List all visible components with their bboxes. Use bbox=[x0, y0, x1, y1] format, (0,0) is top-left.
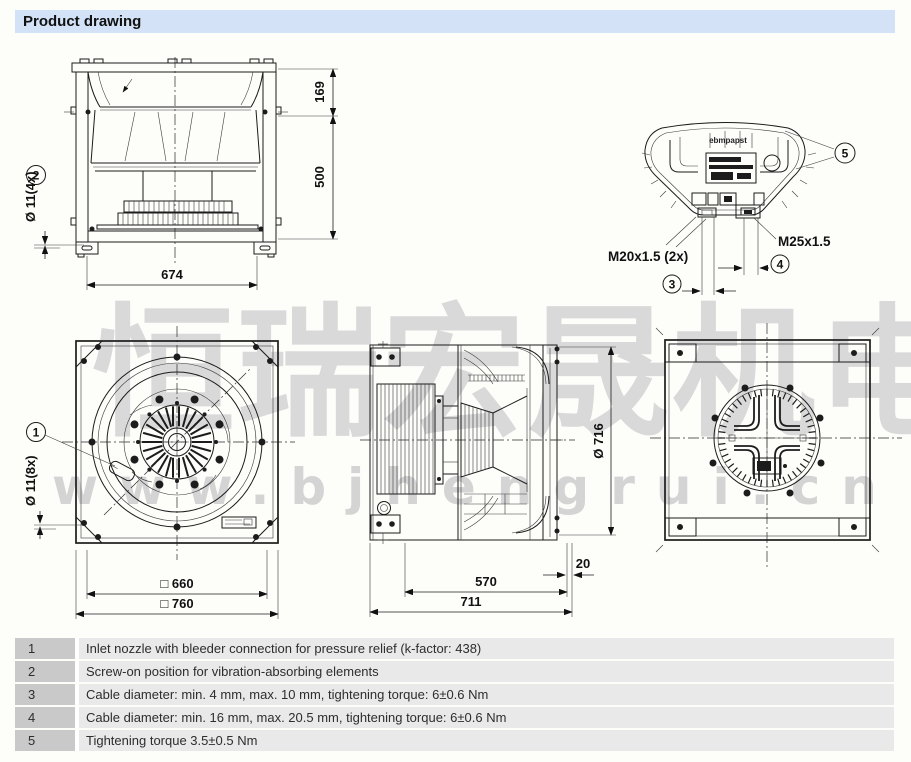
fan-side-outline bbox=[64, 57, 288, 265]
gland-labels: M20x1.5 (2x) M25x1.5 bbox=[608, 217, 831, 264]
legend-text: Cable diameter: min. 4 mm, max. 10 mm, t… bbox=[79, 684, 894, 705]
dimension-674: 674 bbox=[87, 256, 257, 290]
callout-5: 5 bbox=[785, 131, 855, 169]
drawing-front-view: 1 Ø 11(8x) □ 660 □ 760 bbox=[20, 320, 330, 620]
gland-m20-label: M20x1.5 (2x) bbox=[608, 249, 688, 264]
legend-num: 1 bbox=[15, 638, 75, 659]
nameplate bbox=[222, 517, 256, 528]
legend-row-2: 2 Screw-on position for vibration-absorb… bbox=[15, 661, 894, 682]
hole-label-8x: Ø 11(8x) bbox=[23, 455, 38, 506]
depth-view-body bbox=[360, 341, 575, 544]
rear-view-frame bbox=[650, 323, 902, 570]
gland-m25-label: M25x1.5 bbox=[778, 234, 831, 249]
bleeder-connection bbox=[108, 460, 137, 483]
dimension-711: 711 bbox=[370, 543, 572, 617]
legend-num: 3 bbox=[15, 684, 75, 705]
section-header: Product drawing bbox=[15, 10, 895, 33]
legend-row-5: 5 Tightening torque 3.5±0.5 Nm bbox=[15, 730, 894, 751]
svg-text:3: 3 bbox=[669, 278, 676, 292]
rotor-teeth bbox=[465, 405, 489, 475]
drawing-terminal-box: ebmpapst 5 M20x1.5 (2x) M25x1.5 3 4 bbox=[600, 105, 910, 305]
dim-674-label: 674 bbox=[161, 267, 183, 282]
product-drawing-page: { "header": { "title": "Product drawing"… bbox=[0, 0, 911, 762]
dimension-570: 570 bbox=[405, 543, 567, 597]
legend-text: Inlet nozzle with bleeder connection for… bbox=[79, 638, 894, 659]
svg-text:5: 5 bbox=[842, 147, 849, 161]
page-title: Product drawing bbox=[15, 10, 895, 33]
dim-169-label: 169 bbox=[312, 81, 327, 103]
svg-text:□ 660: □ 660 bbox=[160, 576, 193, 591]
legend-num: 2 bbox=[15, 661, 75, 682]
svg-text:711: 711 bbox=[461, 594, 482, 609]
motor-fin-lines bbox=[381, 384, 433, 494]
svg-text:20: 20 bbox=[576, 556, 590, 571]
drawing-depth-view: Ø 716 20 570 711 bbox=[335, 318, 645, 620]
drawing-rear-view bbox=[650, 320, 910, 575]
dim-500-label: 500 bbox=[312, 166, 327, 188]
svg-text:Ø 716: Ø 716 bbox=[591, 423, 606, 458]
dimension-20: 20 bbox=[543, 543, 594, 617]
legend-num: 5 bbox=[15, 730, 75, 751]
legend-num: 4 bbox=[15, 707, 75, 728]
inlet-grid-ticks bbox=[470, 375, 522, 381]
legend-row-3: 3 Cable diameter: min. 4 mm, max. 10 mm,… bbox=[15, 684, 894, 705]
brand-logo-text: ebmpapst bbox=[709, 136, 747, 145]
callout-2-hole-label: 2 Ø 11(4x) bbox=[23, 166, 84, 260]
svg-text:4: 4 bbox=[777, 258, 784, 272]
svg-text:□ 760: □ 760 bbox=[160, 596, 193, 611]
drawing-side-elevation: 674 169 500 2 Ø 11(4x) bbox=[20, 55, 350, 315]
legend-text: Tightening torque 3.5±0.5 Nm bbox=[79, 730, 894, 751]
svg-text:1: 1 bbox=[33, 426, 40, 440]
legend-row-4: 4 Cable diameter: min. 16 mm, max. 20.5 … bbox=[15, 707, 894, 728]
legend-text: Cable diameter: min. 16 mm, max. 20.5 mm… bbox=[79, 707, 894, 728]
legend-text: Screw-on position for vibration-absorbin… bbox=[79, 661, 894, 682]
hole-label-4x: Ø 11(4x) bbox=[23, 171, 38, 222]
terminal-box-outline: ebmpapst bbox=[642, 123, 816, 219]
legend-table: 1 Inlet nozzle with bleeder connection f… bbox=[15, 638, 894, 753]
dimension-716: Ø 716 bbox=[559, 347, 616, 535]
dimension-169-500: 169 500 bbox=[278, 69, 338, 239]
motor-rear bbox=[710, 385, 825, 497]
legend-row-1: 1 Inlet nozzle with bleeder connection f… bbox=[15, 638, 894, 659]
svg-text:570: 570 bbox=[475, 574, 497, 589]
motor-fins-row2 bbox=[123, 213, 233, 225]
motor-fins-row1 bbox=[129, 201, 224, 212]
